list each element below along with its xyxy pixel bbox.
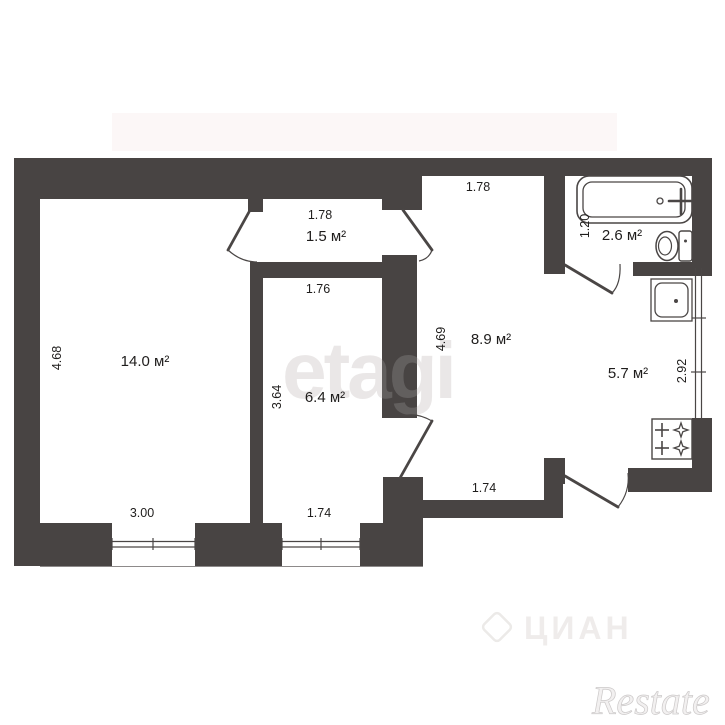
wall-bottom-1 [14, 523, 112, 566]
dim-label-hall-bottom: 1.74 [472, 481, 496, 495]
wall-left [14, 158, 40, 566]
wall-top-left [14, 158, 422, 199]
door-closet-hall [403, 210, 432, 261]
wall-closet-left-stub [248, 199, 263, 212]
watermark-portal-text: ЦИАН [524, 610, 633, 646]
dim-label-bedroom-bottom: 1.74 [307, 506, 331, 520]
dim-label-bathroom-left: 1.20 [578, 214, 592, 238]
door-entrance [565, 473, 628, 507]
wall-closet-right-stub [382, 199, 422, 210]
wall-entry-jamb [551, 458, 565, 484]
floor-plan: etagi etagi [0, 0, 725, 725]
window-kitchen [691, 268, 706, 418]
area-label-hall: 8.9 м² [471, 331, 511, 348]
window-bedroom [282, 538, 360, 550]
wall-living-bedroom [250, 262, 263, 523]
wall-bath-bottom [633, 262, 712, 276]
wall-bedroom-hall-lower [383, 477, 423, 566]
area-label-bedroom: 6.4 м² [305, 389, 345, 406]
area-label-bathroom: 2.6 м² [602, 227, 642, 244]
faint-artifact [112, 113, 617, 151]
dim-label-bedroom-top: 1.76 [306, 282, 330, 296]
wall-hall-bottom [423, 500, 563, 518]
watermark-portal: ЦИАН [481, 610, 632, 646]
wall-kitchen-bottom [628, 468, 712, 492]
door-living [228, 212, 257, 262]
wall-top-right [422, 158, 712, 176]
bathtub-icon [577, 176, 692, 223]
dim-label-living-left: 4.68 [50, 346, 64, 370]
door-bedroom [400, 415, 432, 478]
area-label-kitchen: 5.7 м² [608, 365, 648, 382]
wall-hall-bath [544, 158, 565, 274]
dim-label-hall-left: 4.69 [434, 327, 448, 351]
watermark-restate: Restate [591, 678, 710, 723]
area-label-living-room: 14.0 м² [121, 353, 170, 370]
window-living [112, 538, 195, 550]
dim-label-closet-top: 1.78 [308, 208, 332, 222]
wall-right-top [692, 158, 712, 268]
dim-label-hall-top: 1.78 [466, 180, 490, 194]
wall-closet-bottom [250, 262, 382, 278]
wall-bottom-2 [195, 523, 282, 566]
fixtures [577, 176, 692, 459]
windows [40, 268, 706, 567]
sink-icon [651, 279, 692, 321]
toilet-icon [656, 231, 692, 261]
dim-label-kitchen-right: 2.92 [675, 359, 689, 383]
door-bathroom [565, 264, 620, 293]
dim-label-bedroom-left: 3.64 [270, 385, 284, 409]
gas-stove-icon [652, 419, 692, 459]
portal-logo-icon [481, 611, 512, 642]
area-label-closet: 1.5 м² [306, 228, 346, 245]
dim-label-living-bottom: 3.00 [130, 506, 154, 520]
